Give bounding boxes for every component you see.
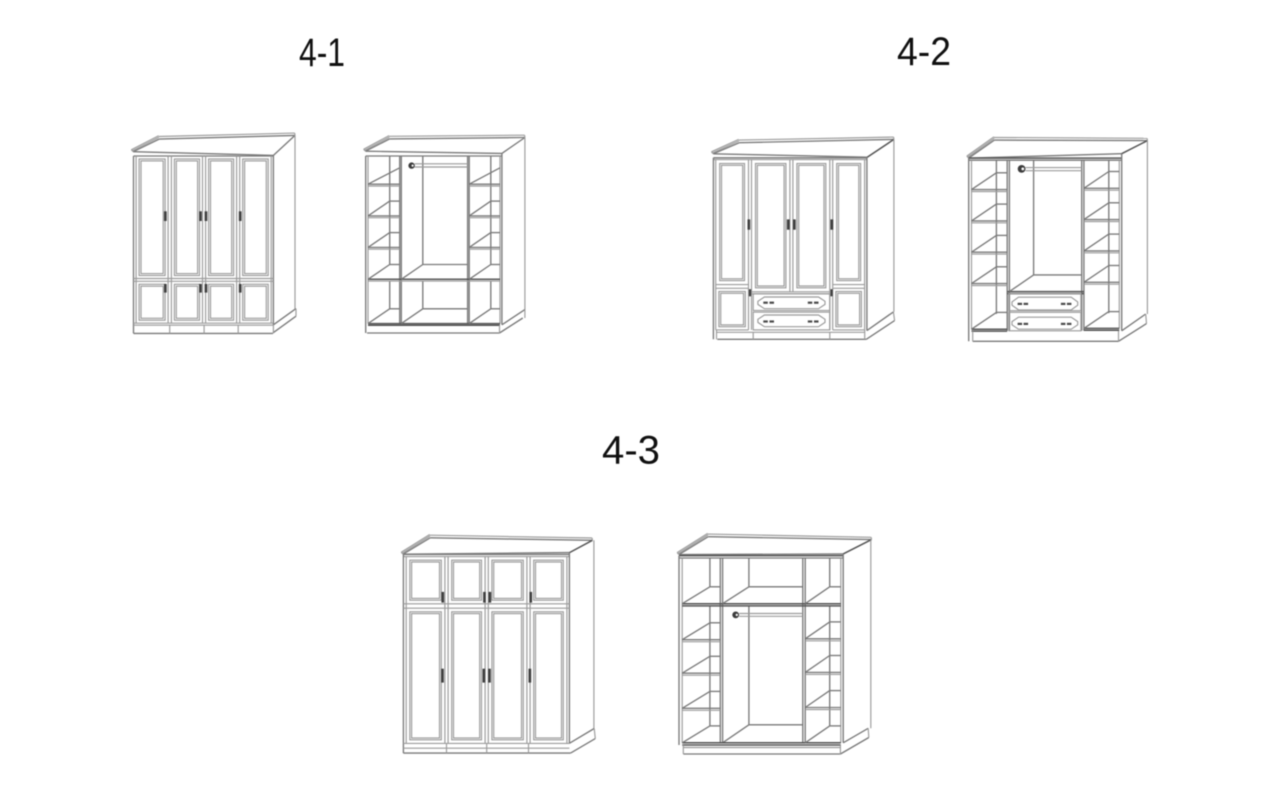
svg-text:4-1: 4-1 [299,31,345,75]
svg-text:4-2: 4-2 [897,30,951,74]
svg-text:4-3: 4-3 [602,429,660,473]
